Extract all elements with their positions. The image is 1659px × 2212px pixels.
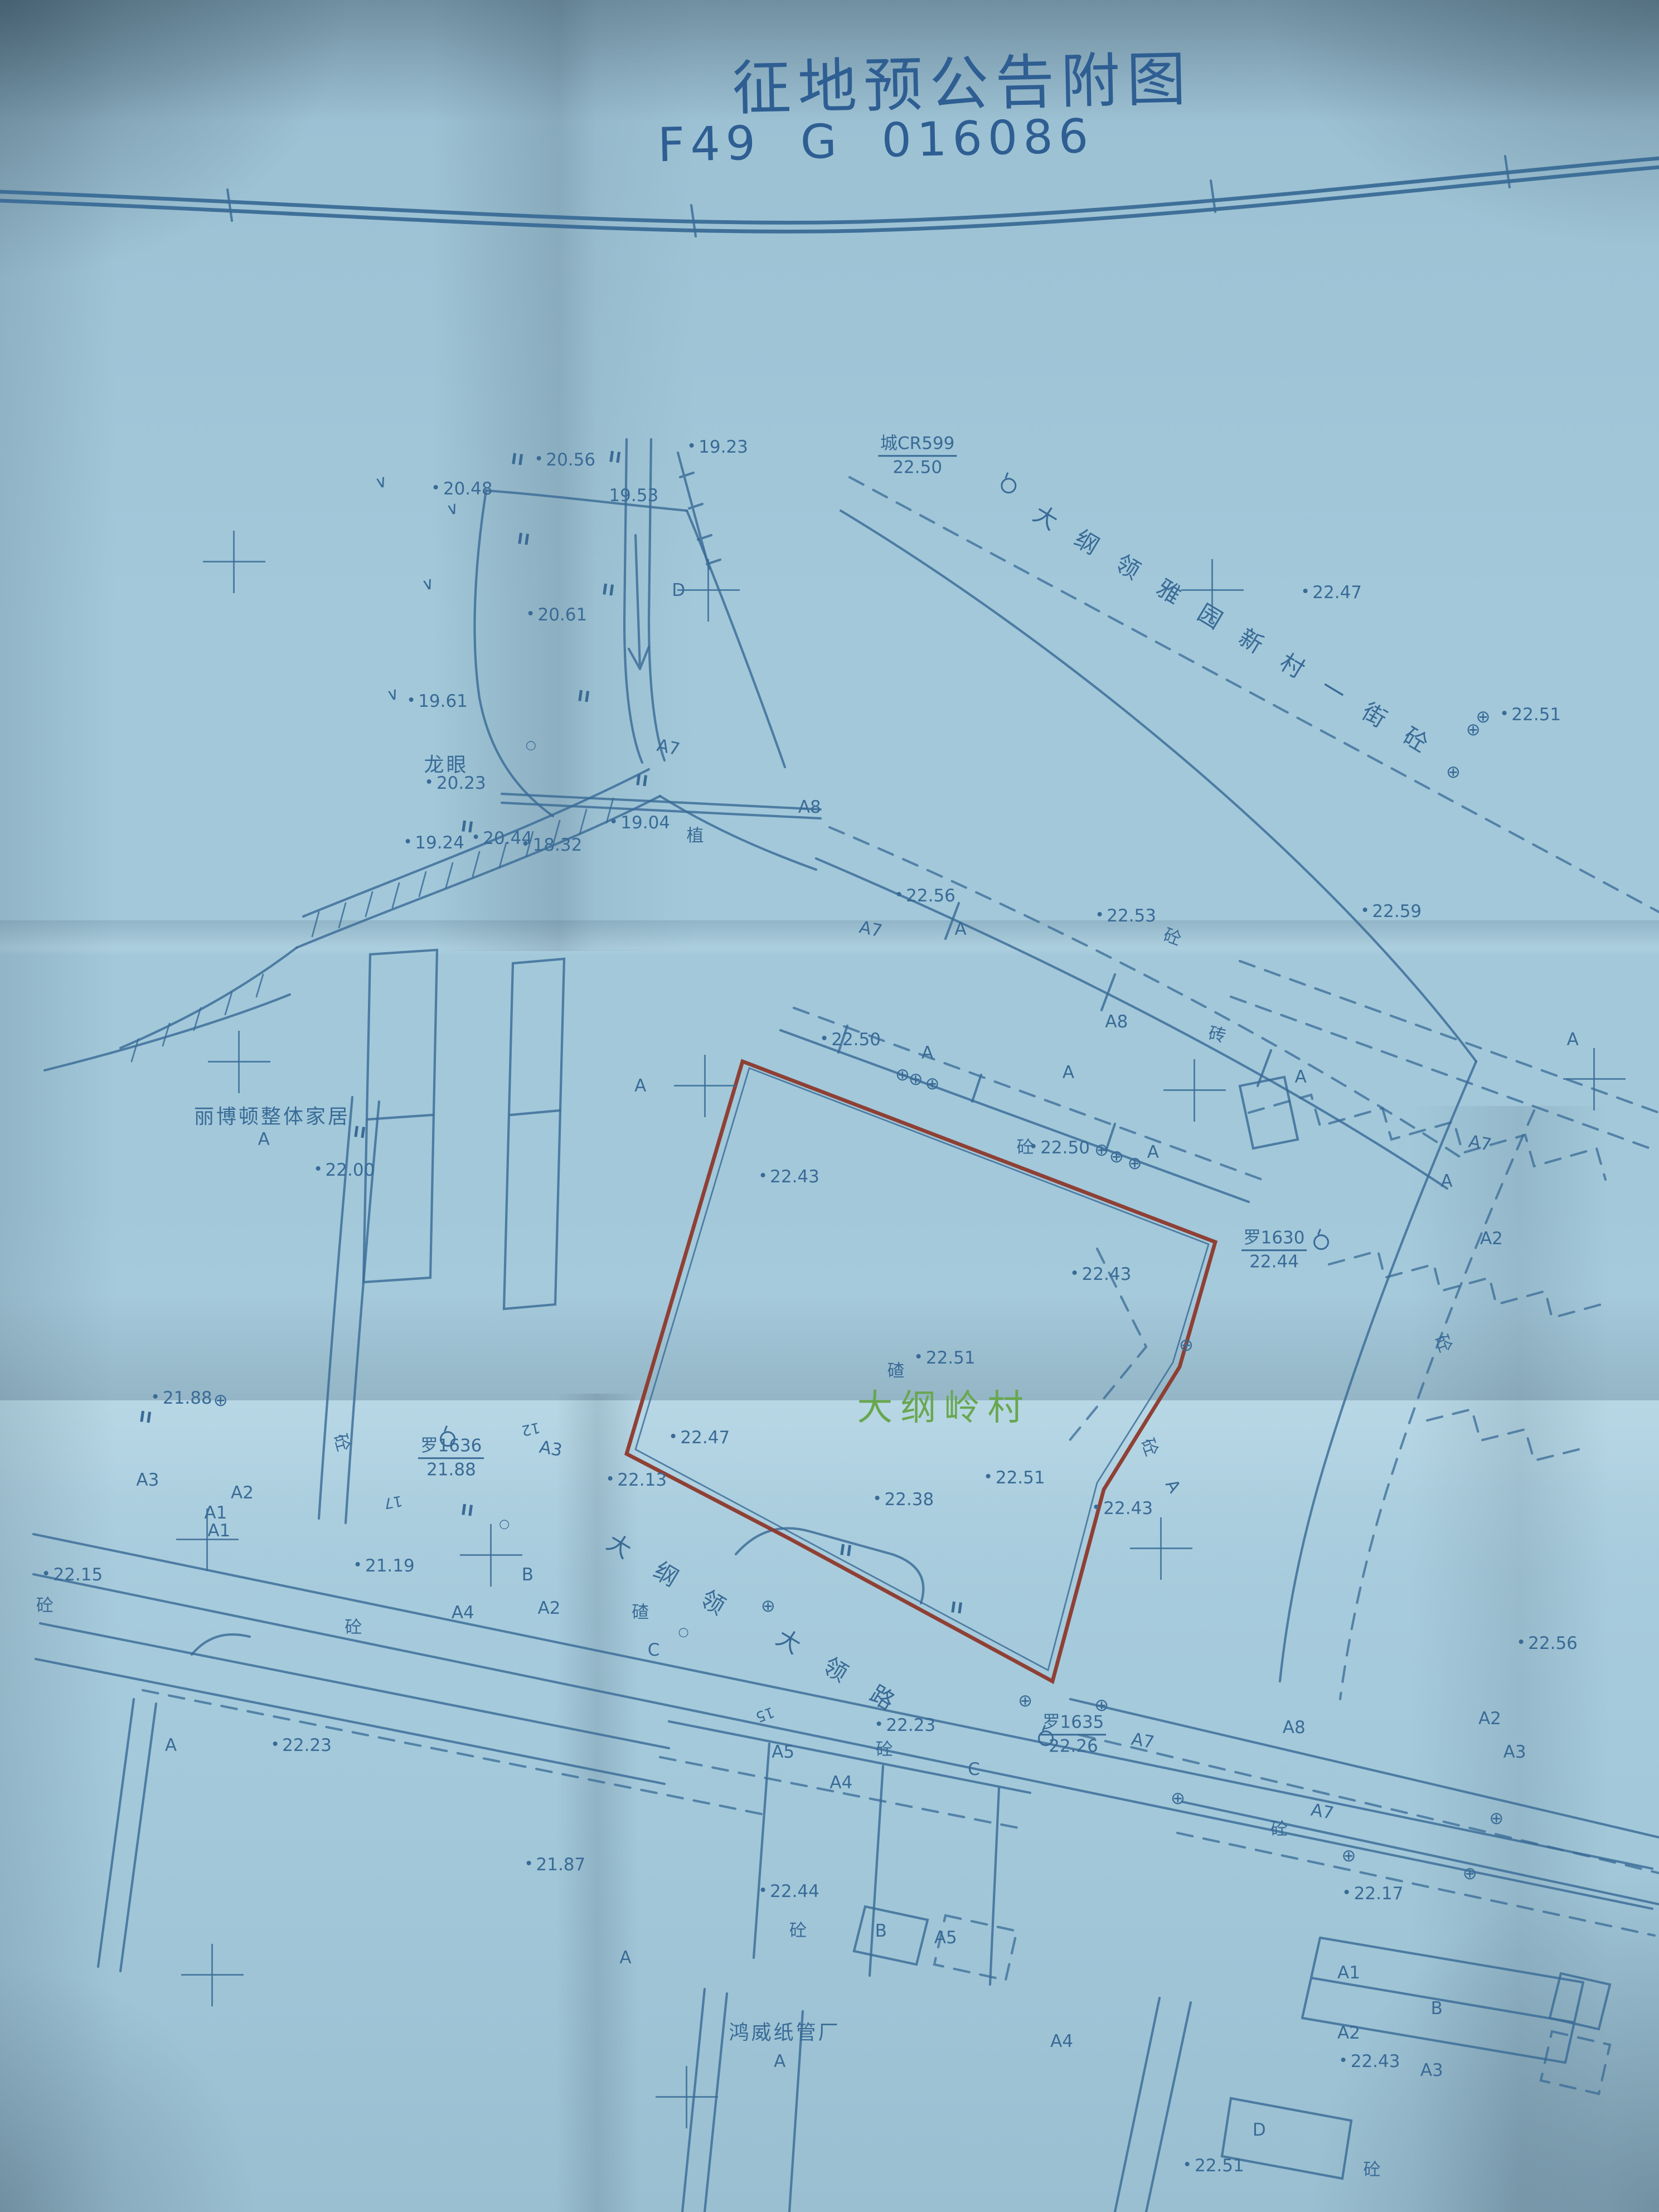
blueprint-map-photo: 征地预公告附图 F49 G 016086 大纲领雅园新村一街砼 大纲领 大领路 …: [0, 0, 1659, 2212]
street-lamp-icon: ⊕: [214, 1390, 228, 1410]
building-code: A: [619, 1948, 631, 1968]
building-code: A3: [538, 1437, 564, 1461]
building-code: A5: [934, 1928, 957, 1948]
control-point-name: 城CR599: [878, 434, 957, 457]
paddy-field-symbol: II: [601, 581, 617, 600]
building-code: A: [258, 1129, 270, 1149]
spot-elevation: 22.43: [1103, 1498, 1153, 1519]
paddy-field-symbol: II: [510, 450, 525, 469]
building-code: A: [1440, 1171, 1452, 1191]
street-lamp-icon: ⊕: [1446, 762, 1461, 782]
spot-elevation: 21.19: [365, 1556, 415, 1576]
spot-elevation: 22.15: [53, 1565, 103, 1585]
building-code: A: [1567, 1030, 1579, 1050]
street-lamp-icon: ⊕: [925, 1074, 940, 1094]
spot-elevation: 22.43: [1351, 2051, 1400, 2072]
street-lamp-icon: ⊕: [1109, 1147, 1124, 1167]
spot-elevation: 22.51: [996, 1468, 1045, 1488]
spot-elevation: 22.23: [282, 1735, 332, 1755]
spot-elevation: 22.56: [1528, 1633, 1578, 1653]
street-lamp-icon: ⊕: [761, 1596, 775, 1616]
spot-elevation: 22.43: [1082, 1264, 1132, 1284]
point-symbol: ○: [526, 739, 536, 753]
building-code: A3: [1420, 2060, 1443, 2080]
control-point-elevation: 22.50: [878, 457, 957, 477]
surface-material: 碴: [887, 1357, 905, 1382]
building-code: A2: [538, 1598, 561, 1618]
surface-material: 砼: [876, 1735, 893, 1760]
paddy-field-symbol: II: [576, 687, 591, 706]
spot-elevation: 22.17: [1354, 1884, 1404, 1904]
paddy-field-symbol: II: [460, 818, 476, 837]
spot-elevation: 22.50: [831, 1030, 881, 1050]
building-code: A7: [1309, 1800, 1336, 1824]
spot-elevation: 22.13: [617, 1470, 667, 1490]
paddy-field-symbol: II: [838, 1541, 854, 1560]
survey-control-point: 罗163522.26: [1041, 1713, 1107, 1755]
grid-cross: [1181, 559, 1244, 622]
paddy-field-symbol: II: [608, 448, 623, 467]
spot-elevation: 19.04: [620, 813, 670, 833]
building-code: A2: [1480, 1229, 1503, 1249]
control-point-elevation: 22.44: [1241, 1251, 1307, 1272]
spot-elevation: 22.00: [326, 1160, 375, 1180]
grid-cross: [1130, 1517, 1192, 1580]
spot-elevation: 22.44: [770, 1881, 819, 1901]
paddy-field-symbol: II: [460, 1501, 476, 1520]
grid-cross: [1563, 1048, 1626, 1110]
building-code: A: [1063, 1063, 1074, 1083]
spot-elevation: 20.61: [537, 605, 587, 625]
building-code: A4: [1050, 2031, 1073, 2051]
street-lamp-icon: ⊕: [1476, 707, 1491, 727]
paddy-field-symbol: II: [634, 772, 650, 790]
building-code: A2: [231, 1483, 254, 1503]
survey-control-point: 城CR59922.50: [878, 434, 957, 477]
spot-elevation: 18.32: [533, 835, 583, 855]
grid-cross: [677, 559, 740, 622]
grid-cross: [1163, 1059, 1226, 1122]
building-code: A: [634, 1076, 646, 1096]
spot-elevation: 21.88: [163, 1388, 212, 1408]
building-code: A4: [829, 1773, 852, 1793]
survey-control-point: 罗163621.88: [419, 1436, 484, 1479]
building-code: D: [1253, 2120, 1266, 2140]
paddy-field-symbol: II: [516, 530, 532, 549]
surface-material: 砼: [1364, 2155, 1381, 2180]
surface-material: 砼: [345, 1613, 362, 1638]
control-point-icon: [1313, 1234, 1329, 1250]
spot-elevation: 19.53: [609, 486, 658, 506]
lot-number: 17: [382, 1492, 404, 1512]
grid-cross: [181, 1944, 244, 2006]
street-lamp-icon: ⊕: [1171, 1788, 1185, 1808]
control-point-icon: [440, 1431, 455, 1447]
point-symbol: ○: [678, 1626, 689, 1639]
map-sheet-number: F49 G 016086: [657, 109, 1094, 172]
spot-elevation: 22.53: [1107, 906, 1156, 926]
street-lamp-icon: ⊕: [909, 1069, 923, 1089]
building-code: B: [522, 1565, 533, 1585]
survey-control-point: 罗163022.44: [1241, 1228, 1307, 1271]
spot-elevation: 19.61: [418, 691, 468, 711]
building-code: A5: [772, 1742, 794, 1762]
grid-cross: [203, 531, 265, 593]
control-point-elevation: 21.88: [419, 1459, 484, 1479]
village-name: 大纲岭村: [857, 1379, 1031, 1430]
building-code: B: [1431, 1998, 1443, 2019]
spot-elevation: 21.87: [536, 1855, 586, 1875]
building-code: A7: [1130, 1729, 1156, 1753]
grid-cross: [176, 1508, 239, 1571]
spot-elevation: 22.51: [1195, 2156, 1244, 2176]
place-name: 鸿威纸管厂: [729, 2016, 841, 2045]
spot-elevation: 19.23: [698, 437, 748, 457]
building-code: A8: [1105, 1012, 1128, 1032]
spot-elevation: 22.51: [926, 1348, 976, 1368]
spot-elevation: 22.50: [1040, 1138, 1090, 1158]
building-code: C: [648, 1640, 660, 1660]
spot-elevation: 22.59: [1372, 901, 1422, 921]
building-code: A8: [1283, 1718, 1306, 1738]
building-code: A2: [1337, 2023, 1360, 2043]
building-code: A: [1295, 1067, 1307, 1087]
building-code: C: [968, 1759, 980, 1779]
surface-material: 植: [686, 821, 704, 846]
building-code: A4: [452, 1603, 474, 1623]
building-code: A: [165, 1735, 177, 1755]
building-code: A3: [1503, 1742, 1526, 1762]
building-code: A: [921, 1043, 933, 1063]
grid-cross: [208, 1031, 270, 1093]
building-code: A: [774, 2051, 785, 2072]
street-lamp-icon: ⊕: [1341, 1846, 1356, 1866]
spot-elevation: 19.24: [415, 833, 464, 853]
spot-elevation: 22.51: [1511, 705, 1561, 725]
surface-material: 碴: [632, 1598, 649, 1623]
spot-elevation: 22.43: [770, 1167, 819, 1187]
paddy-field-symbol: II: [352, 1123, 368, 1142]
grid-cross: [674, 1055, 736, 1117]
building-code: A: [954, 919, 966, 939]
paddy-field-symbol: II: [949, 1599, 965, 1618]
place-name: 丽博顿整体家居: [194, 1100, 350, 1129]
street-lamp-icon: ⊕: [1489, 1808, 1503, 1828]
building-code: A8: [798, 797, 821, 817]
street-lamp-icon: ⊕: [895, 1065, 910, 1085]
grid-cross: [460, 1524, 522, 1587]
surface-material: 砼: [1270, 1815, 1288, 1840]
street-lamp-icon: ⊕: [1128, 1153, 1142, 1173]
building-code: A3: [136, 1470, 159, 1490]
building-code: B: [875, 1921, 887, 1941]
spot-elevation: 22.38: [884, 1490, 934, 1510]
street-lamp-icon: ⊕: [1018, 1691, 1032, 1711]
building-code: A7: [1467, 1132, 1493, 1156]
spot-elevation: 22.47: [1312, 583, 1362, 603]
building-code: A: [1147, 1142, 1159, 1162]
spot-elevation: 20.23: [436, 773, 486, 793]
grid-cross: [656, 2066, 718, 2128]
surface-material: 砼: [789, 1917, 807, 1942]
street-lamp-icon: ⊕: [1179, 1335, 1194, 1355]
control-point-icon: [1038, 1730, 1054, 1746]
building-code: A2: [1478, 1709, 1501, 1729]
building-code: A7: [858, 917, 885, 942]
paddy-field-symbol: II: [138, 1408, 154, 1427]
spot-elevation: 22.56: [906, 886, 955, 906]
street-lamp-icon: ⊕: [1094, 1140, 1109, 1160]
spot-elevation: 20.48: [443, 479, 493, 499]
spot-elevation: 22.47: [680, 1428, 730, 1448]
control-point-name: 罗1630: [1241, 1228, 1307, 1251]
surface-material: 砼: [36, 1591, 54, 1616]
spot-elevation: 22.23: [886, 1715, 935, 1735]
street-lamp-icon: ⊕: [1463, 1864, 1477, 1884]
building-code: A1: [1337, 1963, 1360, 1983]
control-point-icon: [1001, 478, 1017, 493]
spot-elevation: 20.56: [546, 450, 595, 470]
